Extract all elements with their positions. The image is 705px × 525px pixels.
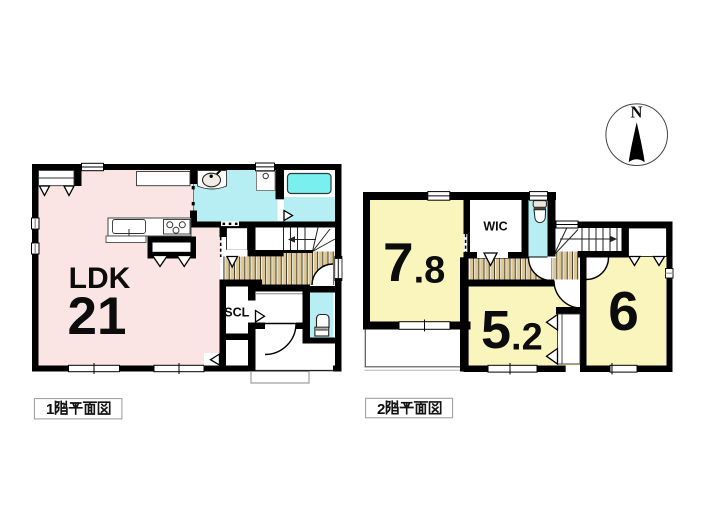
- svg-text:N: N: [631, 103, 643, 122]
- svg-text:SCL: SCL: [224, 306, 249, 320]
- svg-text:6: 6: [608, 280, 639, 342]
- svg-text:WIC: WIC: [483, 220, 507, 234]
- svg-text:2: 2: [377, 401, 385, 418]
- svg-text:1: 1: [46, 401, 54, 418]
- svg-text:21: 21: [68, 287, 127, 346]
